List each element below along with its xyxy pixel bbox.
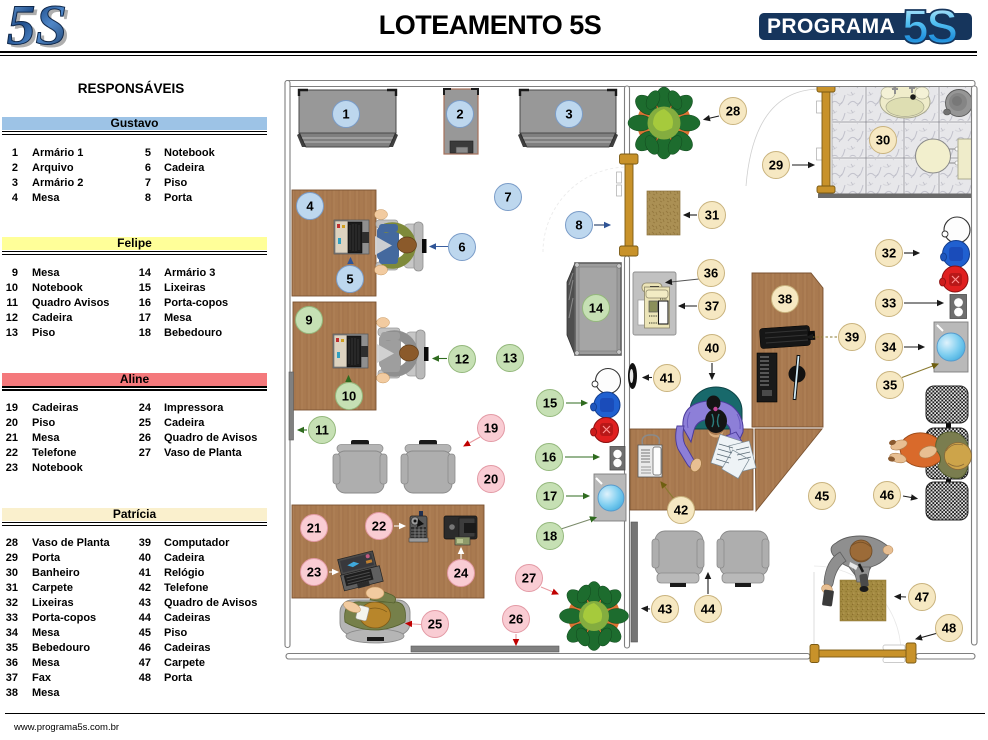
svg-text:6: 6: [458, 240, 465, 255]
svg-text:31: 31: [705, 208, 719, 223]
svg-text:21: 21: [307, 521, 321, 536]
svg-text:48: 48: [942, 621, 956, 636]
svg-text:33: 33: [882, 296, 896, 311]
svg-text:26: 26: [509, 612, 523, 627]
svg-text:2: 2: [456, 107, 463, 122]
svg-text:46: 46: [880, 488, 894, 503]
svg-text:18: 18: [543, 529, 557, 544]
svg-text:19: 19: [484, 421, 498, 436]
svg-text:9: 9: [305, 313, 312, 328]
svg-text:44: 44: [701, 602, 716, 617]
svg-text:47: 47: [915, 590, 929, 605]
svg-text:22: 22: [372, 519, 386, 534]
svg-text:11: 11: [315, 423, 329, 438]
svg-text:42: 42: [674, 503, 688, 518]
svg-text:12: 12: [455, 352, 469, 367]
svg-text:23: 23: [307, 565, 321, 580]
svg-text:43: 43: [658, 602, 672, 617]
svg-text:37: 37: [705, 299, 719, 314]
svg-text:7: 7: [504, 190, 511, 205]
svg-text:25: 25: [428, 617, 442, 632]
svg-text:32: 32: [882, 246, 896, 261]
svg-text:38: 38: [778, 292, 792, 307]
svg-text:13: 13: [503, 351, 517, 366]
svg-text:28: 28: [726, 104, 740, 119]
svg-text:5: 5: [346, 272, 353, 287]
svg-text:1: 1: [342, 107, 349, 122]
svg-text:30: 30: [876, 133, 890, 148]
svg-text:35: 35: [883, 378, 897, 393]
svg-text:10: 10: [342, 389, 356, 404]
svg-text:45: 45: [815, 489, 829, 504]
svg-text:24: 24: [454, 566, 469, 581]
svg-text:15: 15: [543, 396, 557, 411]
svg-text:29: 29: [769, 158, 783, 173]
svg-text:16: 16: [542, 450, 556, 465]
svg-text:34: 34: [882, 340, 897, 355]
svg-text:14: 14: [589, 301, 604, 316]
svg-text:8: 8: [575, 218, 582, 233]
svg-text:3: 3: [565, 107, 572, 122]
svg-text:20: 20: [484, 472, 498, 487]
svg-text:27: 27: [522, 571, 536, 586]
svg-text:17: 17: [543, 489, 557, 504]
svg-text:40: 40: [705, 341, 719, 356]
svg-text:4: 4: [306, 199, 314, 214]
svg-text:41: 41: [660, 371, 674, 386]
svg-text:39: 39: [845, 330, 859, 345]
svg-text:36: 36: [704, 266, 718, 281]
